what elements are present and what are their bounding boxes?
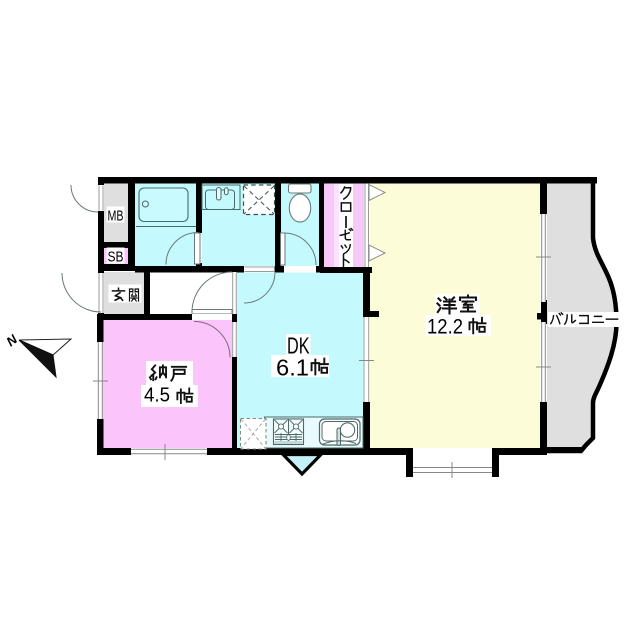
svg-text:12.2: 12.2 <box>427 316 463 339</box>
svg-text:6.1: 6.1 <box>276 355 309 381</box>
svg-text:SB: SB <box>108 249 124 266</box>
svg-text:MB: MB <box>108 208 124 225</box>
svg-text:4.5: 4.5 <box>144 384 170 407</box>
